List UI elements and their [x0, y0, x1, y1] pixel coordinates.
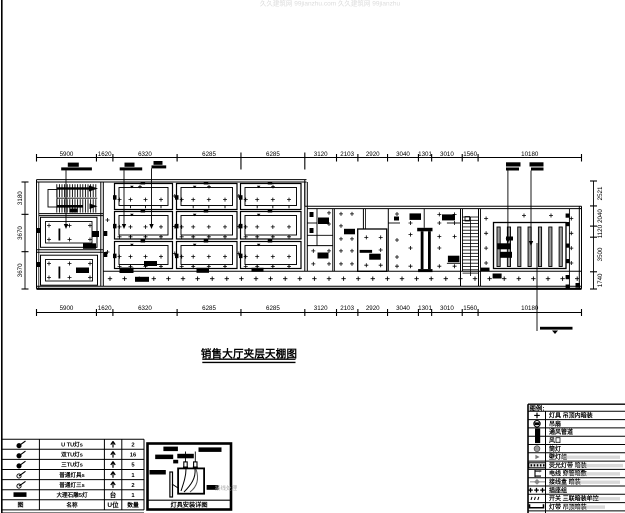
svg-text:3670: 3670: [17, 226, 24, 240]
svg-text:1120: 1120: [597, 224, 604, 238]
svg-text:风口: 风口: [549, 437, 561, 445]
svg-text:5900: 5900: [60, 305, 74, 312]
svg-text:通风管道: 通风管道: [549, 428, 573, 436]
svg-text:图例:: 图例:: [529, 403, 544, 412]
svg-text:3120: 3120: [314, 305, 328, 312]
svg-text:普通灯具s: 普通灯具s: [59, 471, 85, 479]
svg-text:3040: 3040: [396, 305, 410, 312]
svg-text:6320: 6320: [138, 151, 152, 158]
svg-text:台: 台: [110, 490, 117, 499]
svg-text:图: 图: [17, 501, 23, 509]
svg-text:6285: 6285: [202, 151, 216, 158]
svg-text:16: 16: [130, 453, 137, 459]
svg-text:1620: 1620: [98, 305, 112, 312]
svg-text:双TU灯s: 双TU灯s: [61, 451, 83, 459]
svg-text:5900: 5900: [60, 151, 74, 158]
svg-text:3040: 3040: [396, 151, 410, 158]
svg-text:灯具 吊顶内暗装: 灯具 吊顶内暗装: [549, 412, 593, 420]
svg-text:1740: 1740: [597, 273, 604, 287]
svg-text:灯具安装详图: 灯具安装详图: [170, 501, 207, 509]
svg-text:2103: 2103: [340, 151, 354, 158]
svg-text:数量: 数量: [127, 501, 139, 509]
svg-text:10180: 10180: [521, 305, 539, 312]
svg-text:1301: 1301: [418, 151, 432, 158]
svg-text:1620: 1620: [98, 151, 112, 158]
svg-text:筒灯: 筒灯: [549, 445, 561, 453]
svg-text:2: 2: [131, 483, 134, 489]
svg-text:销售大厅夹层天棚图: 销售大厅夹层天棚图: [201, 347, 297, 360]
svg-text:插座组: 插座组: [549, 486, 567, 494]
svg-text:6285: 6285: [266, 305, 280, 312]
svg-text:3010: 3010: [440, 151, 454, 158]
svg-text:普通灯三s: 普通灯三s: [59, 481, 85, 489]
svg-text:U位: U位: [107, 500, 119, 509]
svg-text:6285: 6285: [266, 151, 280, 158]
svg-text:久久建筑网 99jianzhu.com 久久建筑网 99ji: 久久建筑网 99jianzhu.com 久久建筑网 99jianzhu: [260, 0, 401, 8]
svg-text:3180: 3180: [17, 191, 24, 205]
svg-text:2040: 2040: [597, 209, 604, 223]
svg-text:2920: 2920: [366, 305, 380, 312]
svg-text:接线处理: 接线处理: [215, 484, 238, 492]
svg-text:3120: 3120: [314, 151, 328, 158]
svg-text:3500: 3500: [597, 247, 604, 261]
svg-text:三TU灯s: 三TU灯s: [61, 461, 83, 469]
svg-text:1560: 1560: [463, 151, 477, 158]
svg-text:10180: 10180: [521, 151, 539, 158]
svg-text:吊扇: 吊扇: [549, 420, 561, 428]
svg-text:3010: 3010: [440, 305, 454, 312]
svg-text:U TU灯s: U TU灯s: [61, 441, 83, 449]
svg-text:大理石雕5灯: 大理石雕5灯: [56, 491, 87, 499]
svg-text:2920: 2920: [366, 151, 380, 158]
svg-text:6320: 6320: [138, 305, 152, 312]
svg-text:1560: 1560: [463, 305, 477, 312]
svg-text:2: 2: [131, 443, 134, 449]
svg-text:3670: 3670: [17, 263, 24, 277]
svg-text:2103: 2103: [340, 305, 354, 312]
svg-text:6285: 6285: [202, 305, 216, 312]
svg-text:2521: 2521: [597, 186, 604, 200]
svg-text:名称: 名称: [66, 501, 78, 509]
svg-text:1301: 1301: [418, 305, 432, 312]
